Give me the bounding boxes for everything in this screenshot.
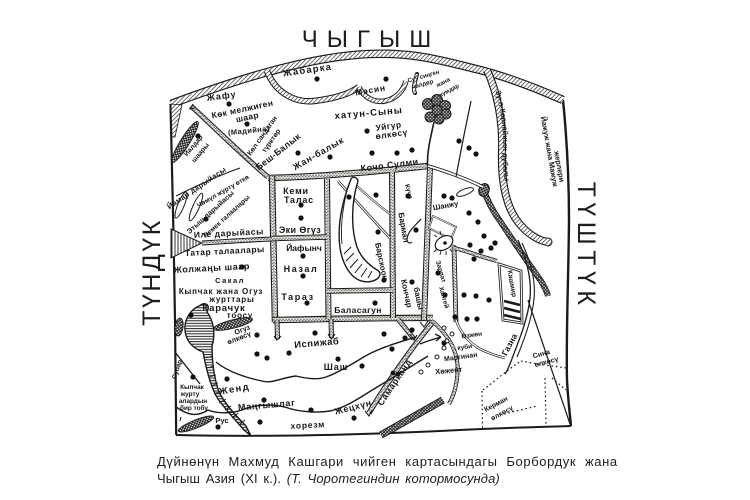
svg-text:Тараз: Тараз	[281, 292, 314, 302]
svg-text:Дүйнөнүн Махмуд Кашгари чийген: Дүйнөнүн Махмуд Кашгари чийген картасынд…	[157, 454, 618, 469]
svg-text:Назал: Назал	[284, 264, 319, 274]
svg-text:Рус: Рус	[215, 416, 228, 425]
svg-text:Чыгыш Азия (XI к.). (Т. Чороте: Чыгыш Азия (XI к.). (Т. Чоротегиндин кот…	[157, 471, 500, 486]
svg-text:хорезм: хорезм	[290, 419, 325, 431]
svg-text:алардын: алардын	[179, 398, 207, 405]
svg-text:Сакал: Сакал	[215, 276, 245, 285]
svg-text:Талас: Талас	[284, 195, 314, 205]
svg-text:Эки Өгүз: Эки Өгүз	[279, 225, 321, 235]
svg-text:ТҮНДҮК: ТҮНДҮК	[138, 218, 166, 326]
svg-text:бир тобу: бир тобу	[180, 404, 208, 412]
svg-text:Баласагун: Баласагун	[334, 305, 382, 315]
svg-text:ЧЫГЫШ: ЧЫГЫШ	[302, 26, 440, 53]
svg-text:Йафынч: Йафынч	[286, 242, 322, 253]
svg-text:ТҮШТҮК: ТҮШТҮК	[572, 182, 600, 311]
svg-text:Кыпчак: Кыпчак	[180, 384, 204, 391]
svg-text:Шаш: Шаш	[324, 362, 349, 372]
svg-text:журту: журту	[180, 391, 200, 398]
svg-text:тоосу: тоосу	[227, 311, 253, 320]
